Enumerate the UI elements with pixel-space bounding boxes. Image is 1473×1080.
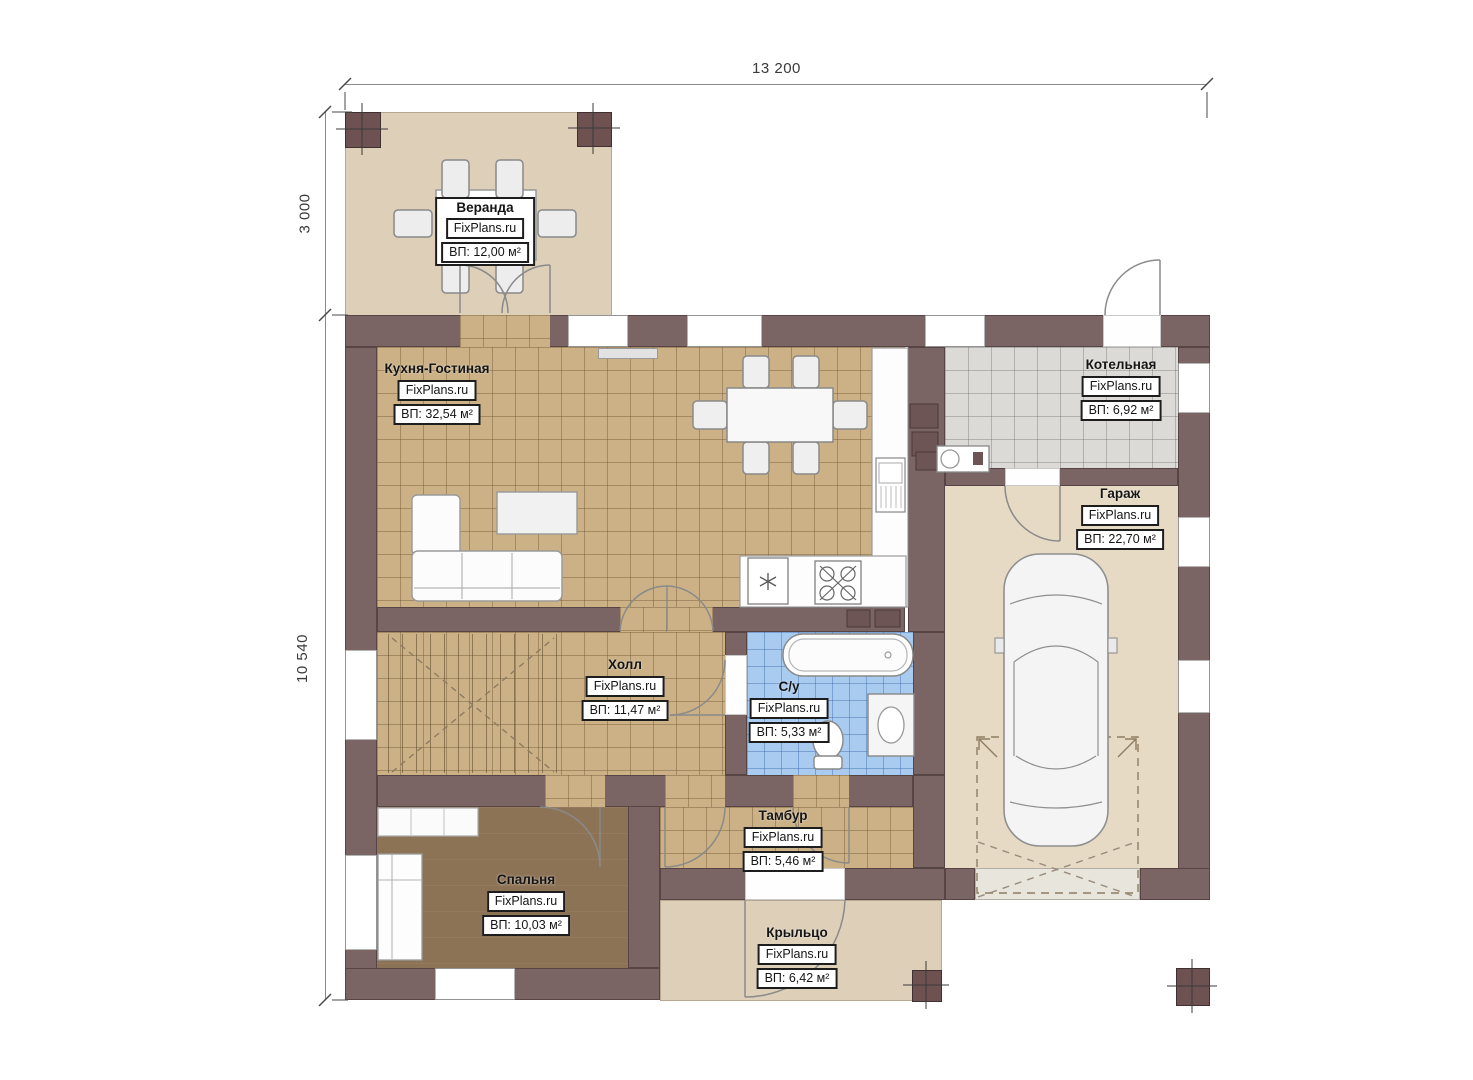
window-kitchen-top-1 — [568, 315, 628, 347]
wall-kitchen-boiler — [908, 347, 945, 632]
dimension-line-house — [325, 315, 326, 1000]
room-site-badge: FixPlans.ru — [446, 218, 525, 239]
wall-bathroom-garage — [913, 632, 945, 775]
window-hall-left — [345, 650, 377, 740]
dimension-line-veranda — [325, 112, 326, 315]
room-label-hall: Холл FixPlans.ru ВП: 11,47 м² — [582, 658, 669, 724]
room-name: Кухня-Гостиная — [385, 362, 490, 377]
room-name: Котельная — [1081, 358, 1162, 373]
room-name: Веранда — [441, 201, 529, 216]
window-garage-right-1 — [1178, 517, 1210, 567]
room-name: Крыльцо — [757, 926, 838, 941]
bedroom-door-opening — [545, 775, 605, 807]
wall-right — [1178, 347, 1210, 900]
wall-garage-bottom-left — [945, 868, 975, 900]
room-site-badge: FixPlans.ru — [487, 891, 566, 912]
room-label-kitchen-living: Кухня-Гостиная FixPlans.ru ВП: 32,54 м² — [385, 362, 490, 428]
room-site-badge: FixPlans.ru — [586, 676, 665, 697]
window-boiler-top — [925, 315, 985, 347]
room-name: С/у — [749, 680, 830, 695]
staircase — [388, 634, 558, 773]
room-name: Холл — [582, 658, 669, 673]
room-label-garage: Гараж FixPlans.ru ВП: 22,70 м² — [1076, 487, 1164, 553]
room-name: Гараж — [1076, 487, 1164, 502]
garage-canopy-column — [1176, 968, 1210, 1006]
bathroom-door-opening — [725, 655, 747, 715]
dimension-top-width: 13 200 — [752, 60, 801, 77]
room-area-badge: ВП: 32,54 м² — [393, 404, 481, 425]
veranda-column-right — [577, 112, 612, 147]
boiler-entry-door-opening — [1103, 315, 1161, 347]
room-area-badge: ВП: 11,47 м² — [582, 700, 669, 721]
room-name: Тамбур — [743, 809, 824, 824]
room-site-badge: FixPlans.ru — [1082, 376, 1161, 397]
room-label-boiler: Котельная FixPlans.ru ВП: 6,92 м² — [1081, 358, 1162, 424]
boiler-garage-door-opening — [1005, 468, 1060, 486]
room-area-badge: ВП: 6,92 м² — [1081, 400, 1162, 421]
room-area-badge: ВП: 10,03 м² — [482, 915, 570, 936]
room-area-badge: ВП: 5,46 м² — [743, 851, 824, 872]
window-garage-right-2 — [1178, 660, 1210, 713]
room-site-badge: FixPlans.ru — [750, 698, 829, 719]
wall-garage-bottom-right — [1140, 868, 1210, 900]
room-area-badge: ВП: 5,33 м² — [749, 722, 830, 743]
room-area-badge: ВП: 22,70 м² — [1076, 529, 1164, 550]
bathroom-vestibule-door-opening — [793, 775, 849, 807]
room-label-vestibule: Тамбур FixPlans.ru ВП: 5,46 м² — [743, 809, 824, 875]
floor-plan: 13 200 3 000 10 540 — [0, 0, 1473, 1080]
dimension-veranda-depth: 3 000 — [297, 193, 314, 233]
veranda-column-left — [345, 112, 381, 148]
hall-vestibule-door-opening — [665, 775, 725, 807]
room-area-badge: ВП: 12,00 м² — [441, 242, 529, 263]
room-name: Спальня — [482, 873, 570, 888]
radiator — [598, 348, 658, 359]
porch-column — [912, 970, 942, 1002]
wall-boiler-garage — [945, 468, 1178, 486]
room-label-veranda: Веранда FixPlans.ru ВП: 12,00 м² — [435, 197, 535, 266]
boiler-exterior-door — [1105, 260, 1160, 315]
window-bedroom-bottom — [435, 968, 515, 1000]
kitchen-hall-door-opening — [620, 607, 713, 632]
window-bedroom-left — [345, 855, 377, 950]
room-site-badge: FixPlans.ru — [398, 380, 477, 401]
room-site-badge: FixPlans.ru — [758, 944, 837, 965]
veranda-door-opening — [460, 315, 550, 347]
room-area-badge: ВП: 6,42 м² — [757, 968, 838, 989]
room-label-bathroom: С/у FixPlans.ru ВП: 5,33 м² — [749, 680, 830, 746]
dimension-house-depth: 10 540 — [294, 634, 311, 683]
wall-vestibule-garage — [913, 775, 945, 868]
dimension-line-top — [345, 84, 1207, 85]
room-label-bedroom: Спальня FixPlans.ru ВП: 10,03 м² — [482, 873, 570, 939]
room-site-badge: FixPlans.ru — [1081, 505, 1160, 526]
garage-gate-opening — [975, 868, 1140, 900]
room-site-badge: FixPlans.ru — [744, 827, 823, 848]
window-kitchen-top-2 — [687, 315, 762, 347]
window-boiler-right — [1178, 363, 1210, 413]
room-label-porch: Крыльцо FixPlans.ru ВП: 6,42 м² — [757, 926, 838, 992]
